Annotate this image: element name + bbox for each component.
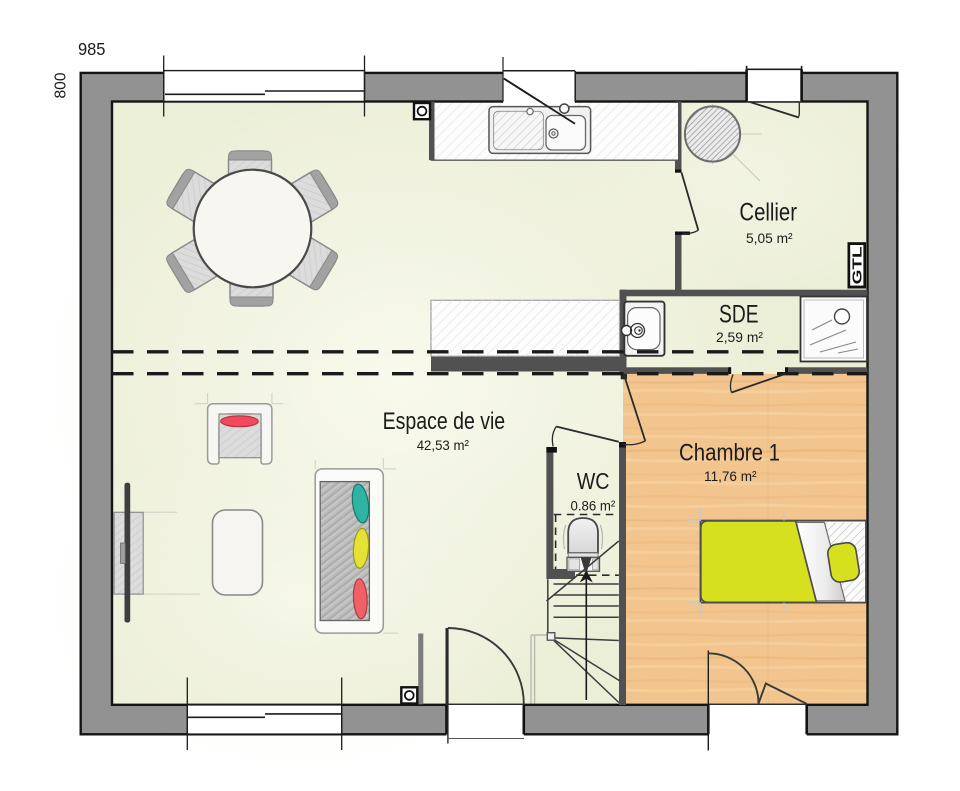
svg-text:11,76 m²: 11,76 m² <box>704 469 757 485</box>
svg-text:5,05 m²: 5,05 m² <box>746 231 793 247</box>
svg-text:Espace de vie: Espace de vie <box>383 408 506 435</box>
svg-text:GTL: GTL <box>850 246 865 284</box>
svg-text:WC: WC <box>577 468 610 494</box>
svg-text:Cellier: Cellier <box>739 198 797 226</box>
svg-text:SDE: SDE <box>719 301 759 329</box>
svg-text:800: 800 <box>53 72 70 98</box>
svg-text:2,59 m²: 2,59 m² <box>716 330 763 346</box>
svg-text:985: 985 <box>78 39 106 59</box>
svg-text:42,53 m²: 42,53 m² <box>417 438 469 454</box>
svg-text:Chambre 1: Chambre 1 <box>679 440 780 467</box>
svg-text:0.86 m²: 0.86 m² <box>571 499 616 515</box>
